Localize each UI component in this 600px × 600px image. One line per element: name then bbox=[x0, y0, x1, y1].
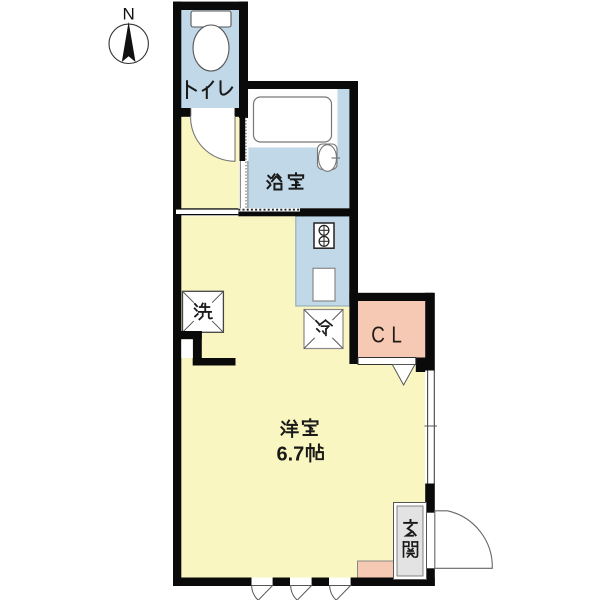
svg-text:6.7: 6.7 bbox=[277, 443, 305, 465]
svg-text:N: N bbox=[123, 5, 135, 24]
svg-text:CL: CL bbox=[371, 323, 408, 348]
